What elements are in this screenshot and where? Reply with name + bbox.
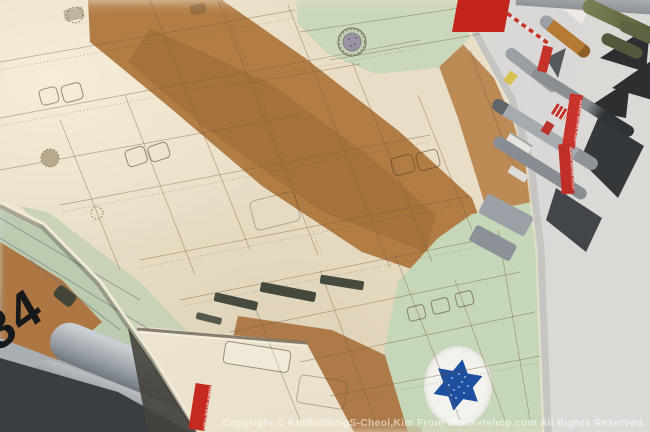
rbf-tag-top (452, 0, 510, 32)
ordnance-details (0, 0, 650, 432)
ordnance-cluster: REMOVE BEFORE FLIGHT REMOVE BEFORE FLIGH… (0, 0, 650, 432)
watermark: Copyright © KulBulWingS-Cheol,Kim From i… (0, 417, 646, 429)
photo-model-aircraft: 34 (0, 0, 650, 432)
